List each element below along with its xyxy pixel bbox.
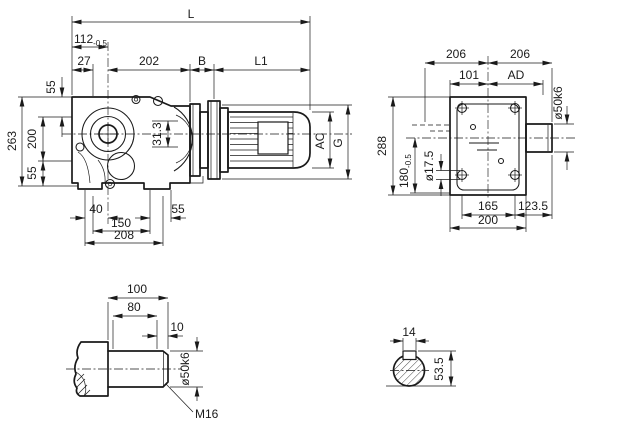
dim-label-40: 40 (89, 202, 103, 216)
dim-label-263: 263 (5, 131, 19, 151)
dim-label-50k6-shaft: ø50k6 (178, 352, 192, 386)
dim-label-53-5: 53.5 (432, 357, 446, 381)
dim-label-200-front: 200 (478, 213, 498, 227)
dim-label-27: 27 (77, 54, 91, 68)
technical-drawing: L 112-0.5 27 202 B L1 263 200 55 (0, 0, 640, 448)
front-view-left-dimensions: 288 180-0.5 ø17.5 (375, 97, 460, 196)
dim-label-55-low: 55 (25, 166, 39, 180)
terminal-box (258, 122, 288, 154)
dim-label-55-foot: 55 (171, 202, 185, 216)
bolt-hole-left (76, 143, 84, 151)
dim-label-31-3: 31.3 (150, 122, 164, 146)
break-hatching (76, 372, 90, 396)
dim-label-208: 208 (114, 228, 134, 242)
shaft-detail-view: 100 80 10 ø50k6 M16 (66, 282, 219, 421)
front-shaft-diameter: ø50k6 (551, 86, 574, 170)
dim-label-206-r: 206 (510, 47, 530, 61)
dim-label-80: 80 (127, 300, 141, 314)
dim-label-112: 112-0.5 (74, 32, 107, 48)
dim-label-L1: L1 (254, 54, 268, 68)
shaft-section-view: 14 53.5 (386, 325, 456, 386)
dim-label-200-side: 200 (25, 129, 39, 149)
dim-label-100: 100 (127, 282, 147, 296)
side-view-left-dimensions: 263 200 55 55 (5, 77, 78, 186)
dim-label-14: 14 (402, 325, 416, 339)
dim-label-AD: AD (508, 68, 525, 82)
dim-label-202: 202 (139, 54, 159, 68)
dim-label-G: G (331, 138, 345, 147)
front-view-bottom-dimensions: 165 123.5 200 (450, 155, 552, 232)
side-view-bottom-dimensions: 40 55 150 208 (70, 190, 186, 246)
front-bolt-holes (455, 101, 522, 182)
keyway (403, 351, 416, 360)
dim-label-165: 165 (478, 199, 498, 213)
front-view-top-dimensions: 206 206 101 AD (425, 47, 552, 122)
housing-details (76, 96, 192, 189)
dim-label-10: 10 (170, 320, 184, 334)
dim-label-123-5: 123.5 (518, 199, 548, 213)
dim-label-50k6-front: ø50k6 (551, 86, 565, 120)
front-view: 206 206 101 AD 288 180-0.5 ø17.5 (375, 47, 576, 232)
dim-label-55-top: 55 (44, 80, 58, 94)
small-hole-upper (471, 125, 476, 130)
small-hole-lower (499, 159, 504, 164)
drawing-page: L 112-0.5 27 202 B L1 263 200 55 (0, 0, 640, 448)
dim-label-288: 288 (375, 136, 389, 156)
dim-label-L: L (188, 7, 195, 21)
dim-label-101: 101 (459, 68, 479, 82)
dim-label-AC: AC (313, 132, 327, 149)
dim-label-180: 180-0.5 (397, 154, 413, 188)
dim-label-206-l: 206 (446, 47, 466, 61)
side-view: L 112-0.5 27 202 B L1 263 200 55 (5, 7, 352, 246)
dim-label-M16: M16 (195, 407, 219, 421)
motor-flange-stack (190, 101, 228, 183)
bolt-hole-bottom (106, 180, 115, 189)
motor-body (228, 112, 310, 168)
dim-label-B: B (198, 54, 206, 68)
dim-label-17-5: ø17.5 (422, 150, 436, 181)
